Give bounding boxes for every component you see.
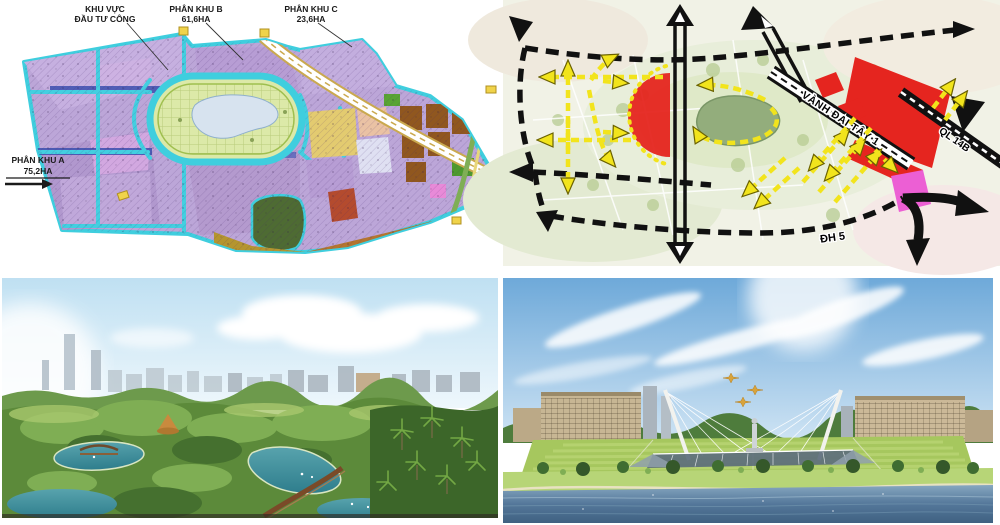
lake-water (503, 485, 993, 523)
label-subzone-c-line1: PHÂN KHU C (284, 3, 337, 14)
label-public-zone-line1: KHU VỰC (85, 4, 125, 14)
zoning-map: KHU VỰC ĐẦU TƯ CÔNG PHÂN KHU B 61,6HA PH… (0, 0, 498, 266)
label-subzone-a-line1: PHÂN KHU A (11, 154, 64, 165)
label-subzone-c-line2: 23,6HA (297, 14, 326, 24)
park-aerial-photo (2, 278, 498, 518)
foreground-shadow (2, 514, 498, 518)
label-subzone-b-line1: PHÂN KHU B (169, 3, 222, 14)
zoning-master-plan-panel: KHU VỰC ĐẦU TƯ CÔNG PHÂN KHU B 61,6HA PH… (0, 0, 498, 266)
label-public-zone-line2: ĐẦU TƯ CÔNG (75, 13, 136, 24)
lakeside-render (503, 278, 993, 523)
label-subzone-a-line2: 75,2HA (24, 166, 53, 176)
traffic-diagram-panel: VÀNH ĐAI TÂY 1 QL 14B ĐH 5 (503, 0, 1000, 266)
planning-collage: KHU VỰC ĐẦU TƯ CÔNG PHÂN KHU B 61,6HA PH… (0, 0, 1000, 525)
lakeside-render-photo (503, 278, 993, 523)
central-park-oval (150, 76, 302, 162)
label-subzone-b-line2: 61,6HA (182, 14, 211, 24)
traffic-diagram: VÀNH ĐAI TÂY 1 QL 14B ĐH 5 (503, 0, 1000, 266)
park-render (2, 278, 498, 518)
palm-grove (370, 405, 498, 518)
